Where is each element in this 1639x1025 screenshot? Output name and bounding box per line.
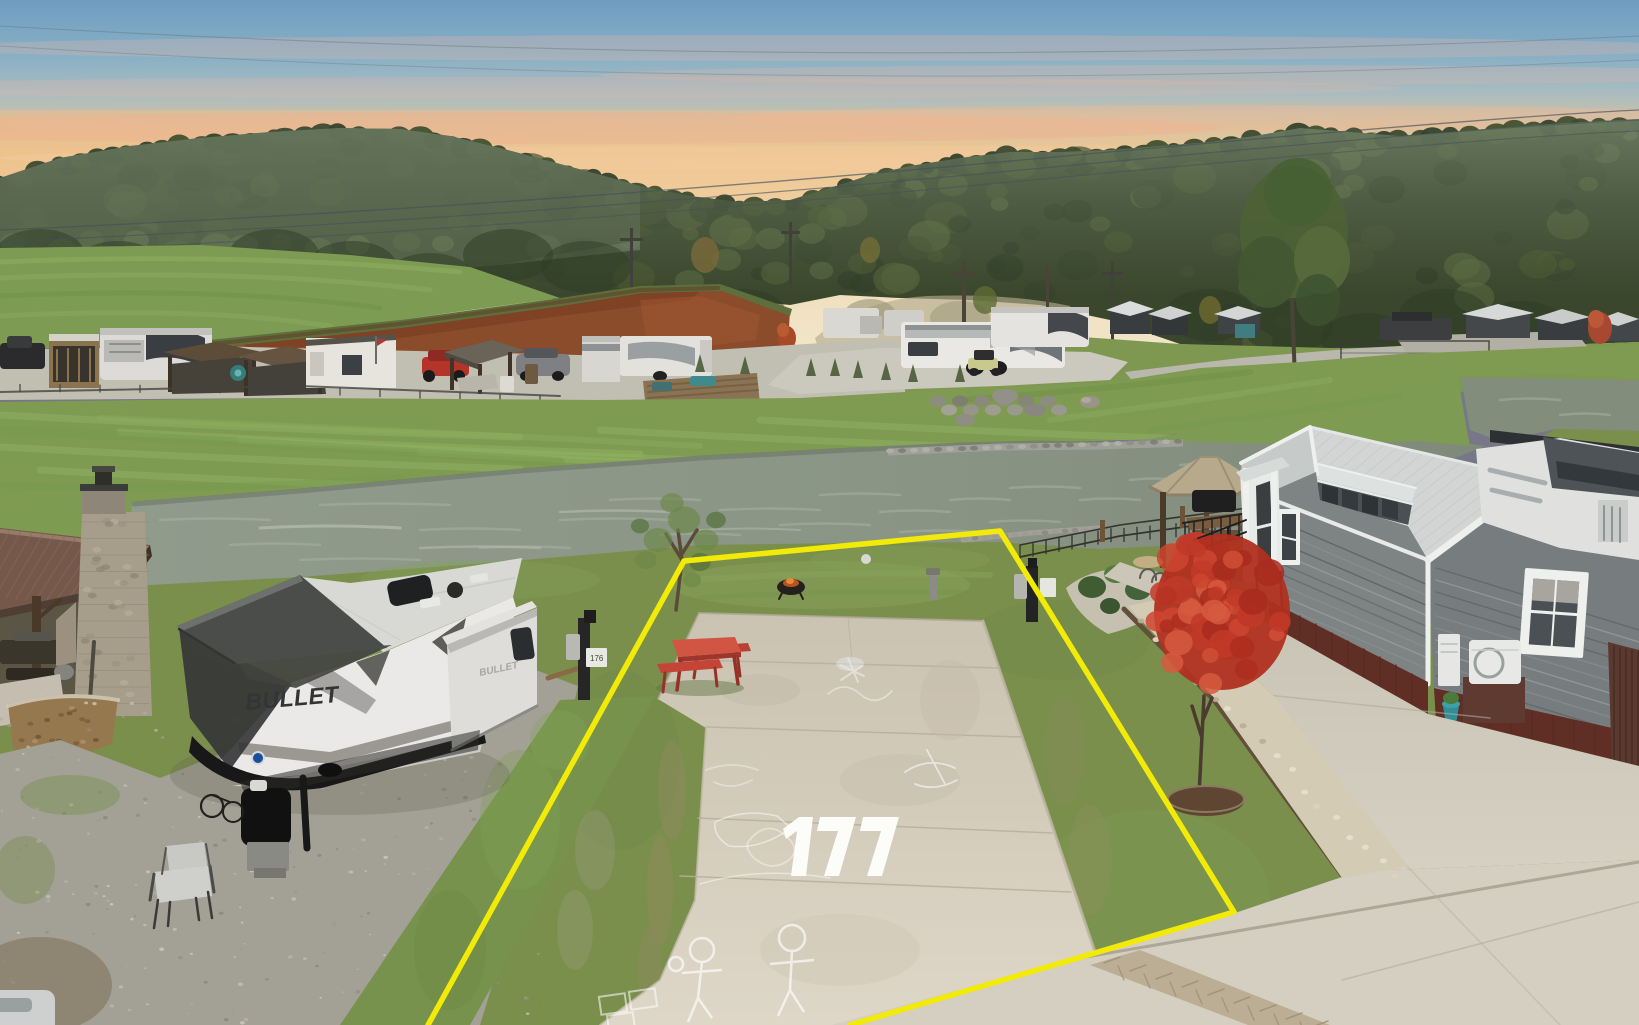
svg-text:176: 176 (590, 654, 604, 663)
